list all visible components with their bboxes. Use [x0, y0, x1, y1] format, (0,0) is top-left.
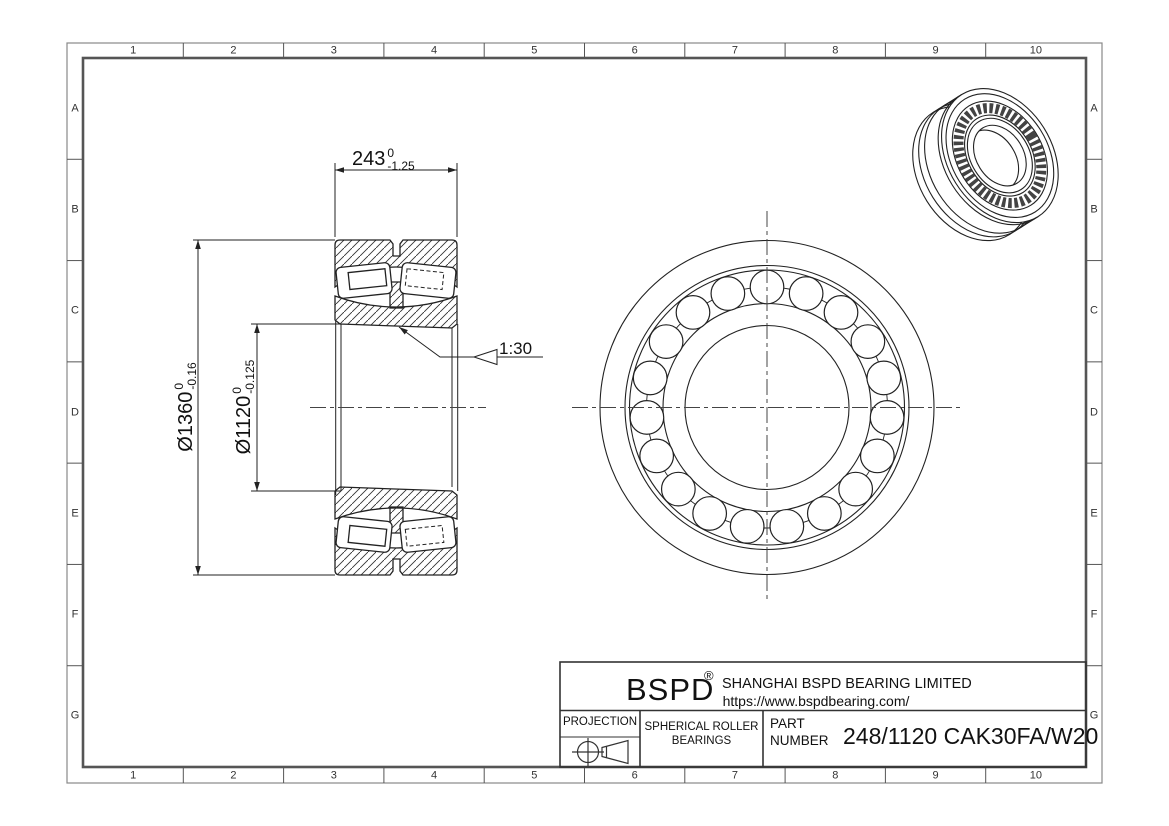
grid-column-label: 1 — [130, 46, 136, 57]
grid-column-label: 2 — [230, 46, 236, 57]
grid-row-label: B — [71, 204, 78, 215]
grid-column-label: 4 — [431, 770, 437, 781]
grid-column-label: 7 — [732, 770, 738, 781]
grid-row-label: B — [1090, 204, 1097, 215]
dimension-bore-diameter: Ø1120 0 -0.125 — [231, 340, 257, 474]
projection-symbol-icon — [572, 738, 628, 766]
cross-section-view — [310, 240, 486, 575]
roller — [851, 325, 885, 359]
dimension-width-value: 243 — [352, 148, 385, 171]
grid-row-label: A — [71, 103, 78, 114]
grid-column-label: 10 — [1030, 46, 1042, 57]
dimension-od-value: Ø1360 — [175, 392, 198, 452]
company-website: https://www.bspdbearing.com/ — [700, 693, 932, 709]
roller — [839, 472, 873, 506]
grid-column-label: 3 — [331, 770, 337, 781]
dimension-width: 243 0 -1.25 — [352, 147, 415, 172]
grid-row-label: D — [1090, 407, 1098, 418]
grid-row-label: F — [1091, 610, 1098, 621]
grid-column-label: 3 — [331, 46, 337, 57]
grid-row-label: C — [71, 306, 79, 317]
projection-label: PROJECTION — [560, 716, 640, 728]
roller — [867, 361, 901, 395]
dimension-bore-value: Ø1120 — [233, 396, 256, 455]
part-number-label-1: PART — [770, 716, 805, 731]
dimension-od-tolerance: 0 -0.16 — [173, 362, 198, 389]
roller — [789, 277, 823, 311]
dimension-outer-diameter: Ø1360 0 -0.16 — [173, 332, 199, 482]
grid-row-label: C — [1090, 306, 1098, 317]
grid-row-label: G — [1090, 711, 1099, 722]
roller-section-bottom-left — [336, 516, 393, 552]
roller — [630, 401, 664, 435]
roller — [824, 296, 858, 330]
grid-column-label: 5 — [531, 46, 537, 57]
grid-column-label: 7 — [732, 46, 738, 57]
grid-column-label: 8 — [832, 770, 838, 781]
roller — [861, 439, 895, 473]
roller — [730, 510, 764, 544]
grid-column-label: 6 — [632, 770, 638, 781]
grid-column-label: 9 — [932, 46, 938, 57]
grid-column-label: 6 — [632, 46, 638, 57]
taper-symbol — [474, 350, 497, 365]
registered-mark: ® — [704, 668, 714, 683]
part-number-value: 248/1120 CAK30FA/W20 — [843, 723, 1098, 750]
roller — [870, 401, 904, 435]
grid-column-label: 8 — [832, 46, 838, 57]
roller — [633, 361, 667, 395]
roller — [640, 439, 674, 473]
roller — [693, 497, 727, 531]
roller-section-top-right — [399, 262, 456, 298]
grid-column-label: 2 — [230, 770, 236, 781]
roller-section-top-left — [336, 262, 393, 298]
roller — [676, 296, 710, 330]
grid-row-label: G — [71, 711, 80, 722]
dimension-width-tolerance: 0 -1.25 — [387, 147, 414, 172]
dimension-bore-tolerance: 0 -0.125 — [231, 360, 256, 394]
grid-column-label: 1 — [130, 770, 136, 781]
roller-section-bottom-right — [399, 516, 456, 552]
part-number-label-2: NUMBER — [770, 733, 829, 748]
product-type-line2: BEARINGS — [640, 735, 763, 747]
front-view — [572, 211, 963, 603]
grid-row-label: E — [1090, 508, 1097, 519]
grid-column-label: 5 — [531, 770, 537, 781]
iso-view — [889, 67, 1082, 262]
roller — [662, 472, 696, 506]
roller — [808, 497, 842, 531]
taper-ratio-label: 1:30 — [499, 339, 532, 359]
grid-row-label: A — [1090, 103, 1097, 114]
company-name: SHANGHAI BSPD BEARING LIMITED — [722, 676, 972, 692]
grid-column-label: 9 — [932, 770, 938, 781]
drawing-sheet: 1122334455667788991010AABBCCDDEEFFGG 243… — [0, 0, 1169, 826]
grid-row-label: E — [71, 508, 78, 519]
grid-column-label: 4 — [431, 46, 437, 57]
roller — [770, 510, 804, 544]
grid-row-label: F — [72, 610, 79, 621]
roller — [711, 277, 745, 311]
product-type-line1: SPHERICAL ROLLER — [640, 721, 763, 733]
roller — [649, 325, 683, 359]
grid-row-label: D — [71, 407, 79, 418]
grid-column-label: 10 — [1030, 770, 1042, 781]
